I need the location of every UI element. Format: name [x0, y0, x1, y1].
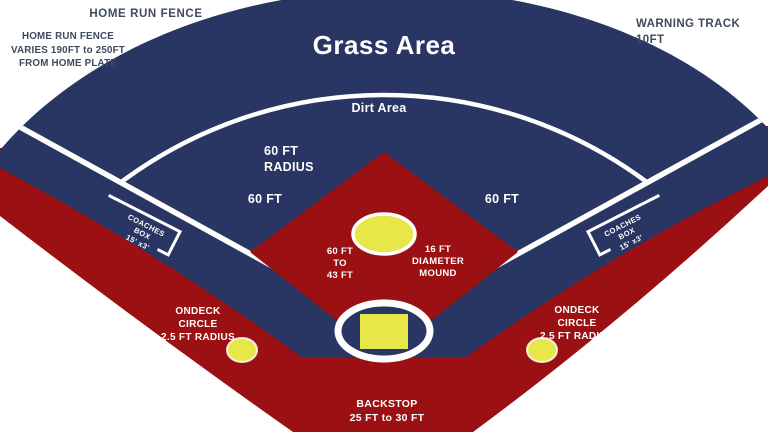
ondeck-left-label: ONDECK CIRCLE 2.5 FT RADIUS — [161, 306, 235, 344]
backstop-label: BACKSTOP 25 FT to 30 FT — [350, 398, 425, 425]
ondeck-right-label: ONDECK CIRCLE 2.5 FT RADIUS — [540, 305, 614, 343]
pitchers-mound — [353, 214, 415, 254]
grass-area-label: Grass Area — [313, 29, 456, 63]
mound-label: 16 FT DIAMETER MOUND — [412, 244, 464, 280]
pitching-distance-label: 60 FT TO 43 FT — [327, 246, 353, 282]
dirt-area-label: Dirt Area — [351, 100, 406, 116]
infield-radius-label: 60 FT RADIUS — [264, 143, 314, 176]
home-run-fence-top-label: HOME RUN FENCE — [89, 7, 202, 22]
field-diagram: HOME RUN FENCE HOME RUN FENCE VARIES 190… — [0, 0, 768, 432]
home-run-fence-left-label: HOME RUN FENCE VARIES 190FT to 250FT FRO… — [11, 30, 125, 71]
baseline-right-label: 60 FT — [485, 191, 519, 207]
warning-track-label: WARNING TRACK 10FT — [636, 17, 740, 48]
home-plate — [360, 314, 408, 349]
baseline-left-label: 60 FT — [248, 191, 282, 207]
